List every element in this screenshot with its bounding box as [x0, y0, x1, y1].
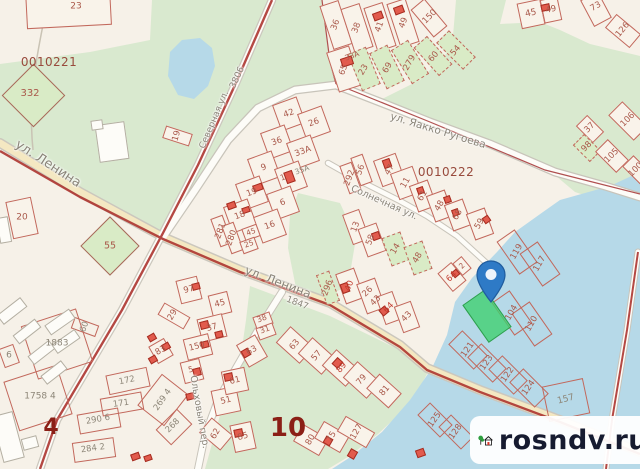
- parcel-number-label: 332: [20, 89, 39, 99]
- building-red: [130, 451, 141, 461]
- parcel[interactable]: [25, 0, 112, 29]
- map-canvas[interactable]: 00102210010222ул. Ленинаул. Ленина184738…: [0, 0, 640, 469]
- building-red: [414, 448, 425, 459]
- parcel-number-label: 6: [6, 352, 12, 361]
- building-white: [90, 119, 103, 131]
- street-label: ул. Ленина: [243, 264, 312, 300]
- parcel-number-label: 20: [16, 214, 27, 223]
- cadastral-quarter-label: 0010222: [418, 166, 474, 178]
- street-label: Ольховый пер.: [188, 375, 210, 450]
- pin-hole: [486, 269, 497, 280]
- parcel-layer: 00102210010222ул. Ленинаул. Ленина184738…: [0, 0, 640, 469]
- parcel-number-label: 23: [70, 3, 81, 12]
- street-label: ул. Ленина: [13, 138, 83, 190]
- parcel-number-label: 49: [545, 5, 557, 16]
- parcel-number-label: 4: [43, 417, 58, 439]
- watermark-text: rosndv.ru: [499, 425, 640, 456]
- location-pin[interactable]: [474, 259, 508, 305]
- cadastral-quarter-label: 0010221: [21, 56, 77, 68]
- parcel-number-label: 1883: [46, 340, 69, 349]
- parcel-number-label: 35А: [294, 164, 310, 176]
- street-label: ул. Яакко Ругоева: [389, 111, 487, 150]
- building-red: [346, 448, 357, 460]
- parcel-number-label: 55: [104, 241, 116, 251]
- parcel-number-label: 10: [270, 415, 306, 441]
- watermark-logo-icon: [478, 421, 493, 459]
- building-red: [147, 332, 157, 342]
- pin-body: [477, 261, 505, 302]
- street-label: Северная ул.: [199, 90, 232, 151]
- street-label: 3806: [229, 66, 247, 91]
- building-white: [0, 297, 28, 325]
- watermark: rosndv.ru: [470, 416, 640, 464]
- parcel-number-label: 1758 4: [24, 393, 56, 402]
- parcel-number-label: 171: [112, 399, 129, 410]
- building-red: [143, 454, 153, 462]
- building-white: [21, 435, 40, 451]
